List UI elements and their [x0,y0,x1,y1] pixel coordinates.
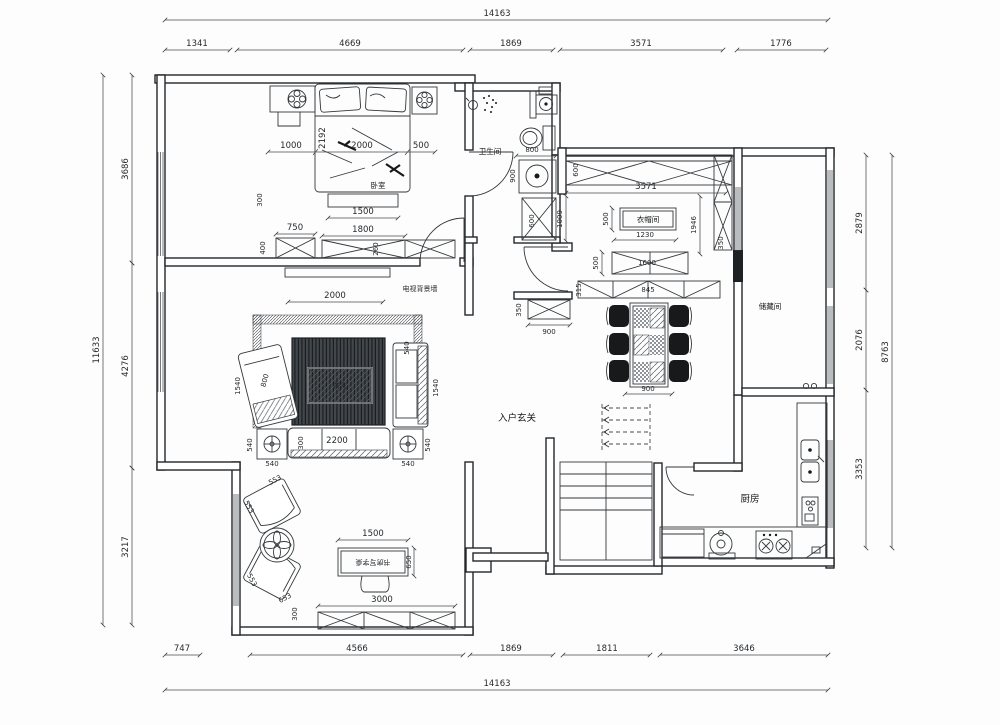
washing-machine [662,529,704,557]
double-sink [801,440,824,482]
dim-top-2: 4669 [339,39,361,49]
dim-bottom-total: 14163 [483,679,510,689]
room-label-bedroom: 卧室 [371,180,386,190]
tv-console [285,268,390,277]
dim-tv-2000: 2000 [324,291,346,301]
room-label-foyer: 入户玄关 [498,412,537,424]
dim-cloak-3571: 3571 [635,182,657,192]
dim-bottom-1: 747 [174,644,190,654]
appliance-panel [802,497,818,525]
dim-right-3: 3353 [855,458,865,480]
room-label-bath: 卫生间 [479,146,502,156]
dim-right-1: 2879 [855,212,865,234]
label-tv-wall: 电视背景墙 [403,284,438,293]
kitchen-door [666,467,694,495]
floor-plan-canvas: 14163 1341 4669 1869 3571 1776 11633 368… [0,0,1000,725]
dim-left-3: 3217 [121,536,131,558]
dining [578,252,720,387]
stairs [560,404,652,560]
dim-island-1230: 1230 [636,231,654,239]
dim-dining-1600: 1600 [638,259,656,267]
dim-dining-500: 500 [592,256,600,269]
dim-shoe-900: 900 [542,328,555,336]
dim-bath-800: 800 [525,146,538,154]
label-coffee-table: 茶几 [333,381,347,390]
lamp-icon [417,92,433,108]
dim-side-260: 260 [372,242,380,255]
label-desk: 书房写字桌 [356,558,391,567]
dim-table-540c: 540 [424,438,432,451]
wardrobe-top [566,155,732,185]
pillow-left [319,87,361,113]
dim-chaise-1540: 1540 [234,377,242,395]
round-table [260,528,294,562]
lamp-icon [288,90,306,108]
bed [315,84,410,192]
dim-counter-845: 845 [641,286,654,294]
room-label-storage: 储藏间 [759,301,782,311]
dim-right-2: 2076 [855,329,865,351]
dim-studycab-3000: 3000 [371,595,393,605]
dim-shoe-350: 350 [515,303,523,316]
dim-study-300: 300 [291,607,299,620]
dim-top-3: 1869 [500,39,522,49]
dim-cloak-350: 350 [717,236,725,249]
dim-sofa-2200: 2200 [326,436,348,446]
dim-cloak-600: 600 [572,163,580,176]
dim-right-total: 8763 [881,341,891,363]
sofa-side-table [393,429,423,459]
dim-bath-600: 600 [528,214,536,227]
dim-table-540b: 540 [265,460,278,468]
foyer [528,300,570,319]
dim-cab-750: 750 [287,223,303,233]
wardrobe-big [322,240,455,258]
dim-left-1: 3686 [121,158,131,180]
dining-door [524,247,568,291]
dining-table [630,303,668,387]
dim-top-4: 3571 [630,39,652,49]
outer-dimensions: 14163 1341 4669 1869 3571 1776 11633 368… [92,9,892,690]
dim-top-total: 14163 [483,9,510,19]
dim-bottom-3: 1869 [500,644,522,654]
dim-foyer-1009: 1009 [556,210,564,228]
dim-bath-900: 900 [509,169,517,182]
floor-plan-page: 14163 1341 4669 1869 3571 1776 11633 368… [0,0,1000,725]
dim-bed-2192: 2192 [318,127,328,149]
curtain-box [253,315,422,324]
room-label-cloak: 衣帽间 [637,214,660,224]
dim-bed-2000: 2000 [351,141,373,151]
wardrobe-right [714,155,732,250]
stove [756,531,792,559]
bath-sink [519,160,556,193]
dim-dining-900: 900 [641,385,654,393]
room-label-kitchen: 厨房 [740,493,759,505]
bed-bench [328,194,398,207]
dim-desk-650: 650 [405,555,413,568]
dim-desk-1500: 1500 [362,529,384,539]
dim-rightsofa-540: 540 [403,341,411,354]
chaise [237,344,298,428]
dim-bed-500: 500 [413,141,429,151]
dim-bottom-5: 3646 [733,644,755,654]
stool [278,112,300,126]
kitchen-round-sink [709,531,735,560]
dim-table-540d: 540 [401,460,414,468]
nightstand [412,87,437,114]
dim-cab-1800: 1800 [352,225,374,235]
corner-shelf [806,544,826,558]
dim-bed-1000: 1000 [280,141,302,151]
dim-sofa-300: 300 [297,436,305,449]
dim-top-5: 1776 [770,39,792,49]
shoe-cabinet [528,300,570,319]
desk-chair [361,576,389,592]
dim-top-1: 1341 [186,39,208,49]
wardrobe-small [276,238,315,258]
dim-cloak-1946: 1946 [690,216,698,234]
dim-counter-315: 315 [575,283,583,296]
dim-side-300: 300 [256,193,264,206]
dresser [270,86,315,112]
dim-bottom-4: 1811 [596,644,618,654]
dim-left-2: 4276 [121,355,131,377]
dim-left-total: 11633 [92,336,102,363]
dim-table-540a: 540 [246,438,254,451]
dim-island-500: 500 [602,212,610,225]
dim-bench-1500: 1500 [352,207,374,217]
dim-bottom-2: 4566 [346,644,368,654]
sofa-side-table [257,429,287,459]
dim-side-400: 400 [259,241,267,254]
kitchen-counter-south [660,527,827,558]
dim-rightsofa-1540: 1540 [432,379,440,397]
kitchen [660,403,827,559]
pillow-right [365,87,406,112]
bathroom-door [469,152,513,196]
